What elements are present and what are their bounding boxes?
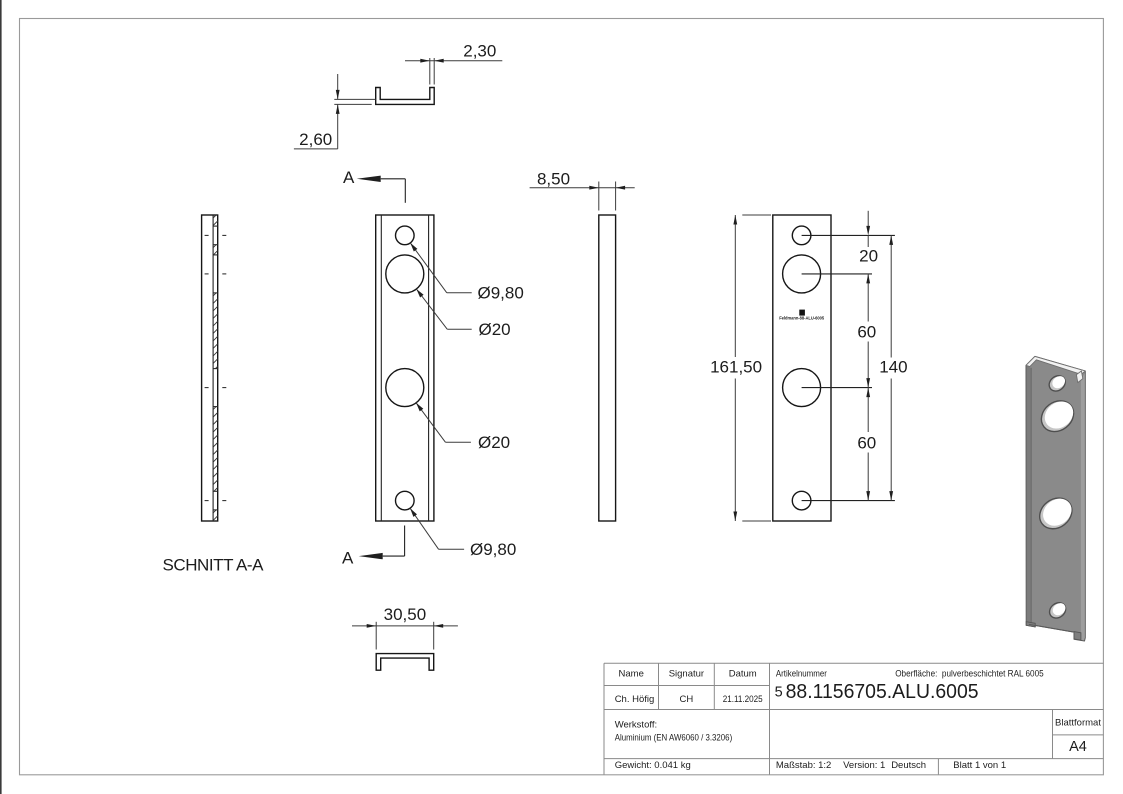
svg-text:20: 20 — [859, 247, 878, 266]
svg-text:Feldmann-88-ALU-6005: Feldmann-88-ALU-6005 — [779, 316, 824, 321]
svg-text:Gewicht: 0.041 kg: Gewicht: 0.041 kg — [615, 760, 691, 771]
svg-text:Deutsch: Deutsch — [891, 760, 926, 771]
svg-text:8,50: 8,50 — [537, 170, 570, 189]
svg-text:140: 140 — [879, 358, 907, 377]
svg-text:Name: Name — [619, 669, 644, 680]
svg-text:Artikelnummer: Artikelnummer — [776, 669, 827, 680]
svg-text:Ch. Höfig: Ch. Höfig — [615, 694, 655, 705]
svg-text:Blattformat: Blattformat — [1055, 717, 1101, 728]
svg-text:Datum: Datum — [729, 669, 757, 680]
svg-text:Version: 1: Version: 1 — [843, 760, 885, 771]
svg-text:Oberfläche: pulverbeschichtet: Oberfläche: pulverbeschichtet RAL 6005 — [895, 669, 1043, 680]
svg-text:88.1156705.ALU.6005: 88.1156705.ALU.6005 — [786, 681, 979, 703]
svg-text:Ø20: Ø20 — [478, 433, 510, 452]
svg-text:A: A — [342, 549, 354, 568]
svg-text:21.11.2025: 21.11.2025 — [723, 694, 763, 705]
svg-text:A4: A4 — [1069, 739, 1087, 755]
svg-text:2,30: 2,30 — [463, 42, 496, 61]
svg-text:CH: CH — [680, 694, 694, 705]
svg-text:5: 5 — [775, 684, 783, 700]
svg-text:60: 60 — [857, 323, 876, 342]
svg-text:Aluminium (EN AW6060 / 3.3206): Aluminium (EN AW6060 / 3.3206) — [615, 733, 733, 744]
svg-text:Ø9,80: Ø9,80 — [470, 540, 516, 559]
svg-text:30,50: 30,50 — [384, 605, 427, 624]
svg-text:Werkstoff:: Werkstoff: — [615, 719, 657, 730]
svg-text:Ø20: Ø20 — [479, 320, 511, 339]
svg-text:60: 60 — [857, 433, 876, 452]
svg-text:Ø9,80: Ø9,80 — [478, 284, 524, 303]
svg-text:161,50: 161,50 — [710, 358, 762, 377]
svg-text:2,60: 2,60 — [299, 130, 332, 149]
svg-text:A: A — [343, 168, 355, 187]
svg-text:Maßstab: 1:2: Maßstab: 1:2 — [776, 760, 831, 771]
svg-text:Signatur: Signatur — [669, 669, 704, 680]
svg-text:SCHNITT A-A: SCHNITT A-A — [163, 556, 265, 575]
svg-text:Blatt 1 von 1: Blatt 1 von 1 — [953, 760, 1006, 771]
